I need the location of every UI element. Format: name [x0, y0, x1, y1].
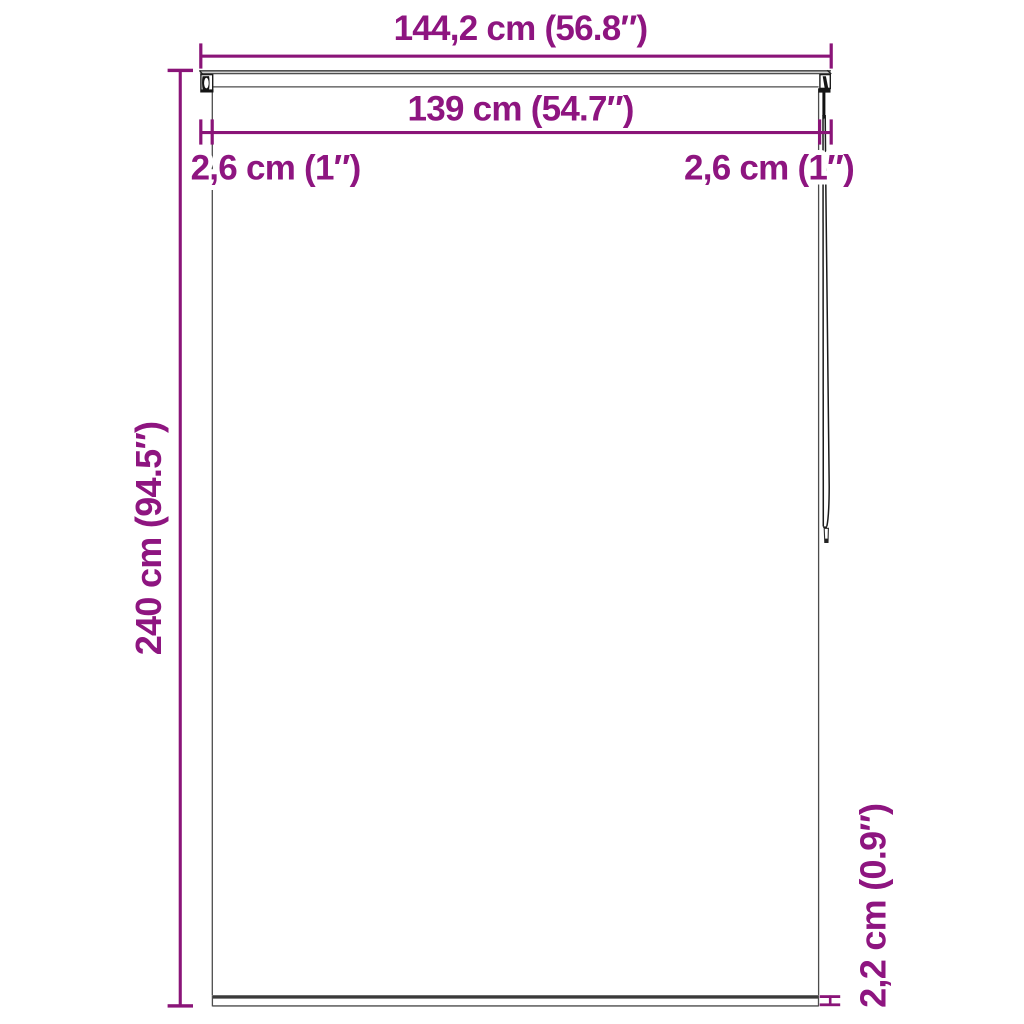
svg-text:144,2 cm (56.8″): 144,2 cm (56.8″): [394, 9, 648, 48]
svg-text:2,6 cm (1″): 2,6 cm (1″): [684, 149, 854, 188]
svg-text:2,2 cm (0.9″): 2,2 cm (0.9″): [852, 804, 893, 1008]
svg-text:139 cm (54.7″): 139 cm (54.7″): [408, 89, 634, 128]
svg-text:2,6 cm (1″): 2,6 cm (1″): [191, 149, 361, 188]
svg-text:240 cm (94.5″): 240 cm (94.5″): [128, 422, 169, 656]
